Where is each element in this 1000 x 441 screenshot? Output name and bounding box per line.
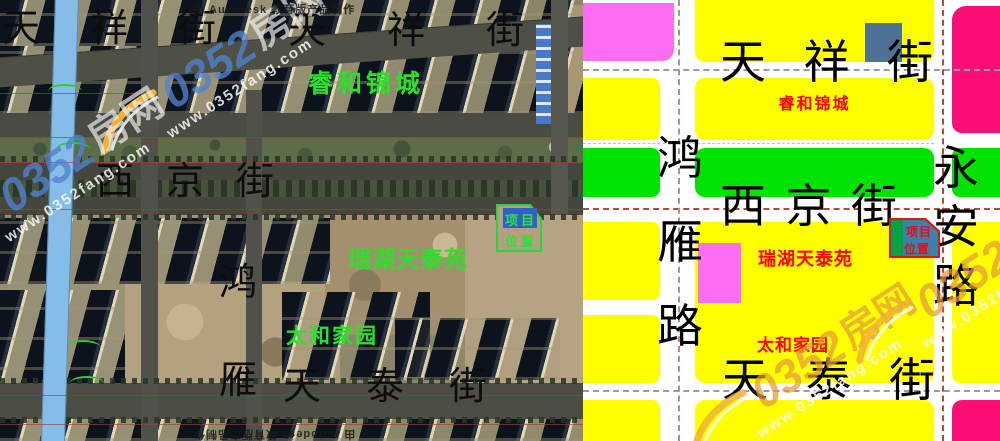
estate-label-ruihu-tiantaiyuan: 瑞湖天泰苑 xyxy=(348,248,468,271)
estate-label-ruihu-tiantaiyuan: 瑞湖天泰苑 xyxy=(758,245,853,271)
land-parcel-yellow xyxy=(695,400,934,441)
autodesk-credit-text-flipped: 由 Autodesk 教育版产品制作 xyxy=(193,427,355,441)
canal-bank-mark xyxy=(48,84,82,98)
road-surface xyxy=(551,0,568,215)
land-parcel-yellow xyxy=(583,315,660,383)
street-label-tianxiang: 天祥街 xyxy=(720,40,933,86)
road-surface xyxy=(0,163,583,180)
land-parcel-yellow xyxy=(583,78,660,140)
marker-text-line1: 项目 xyxy=(505,210,537,229)
cad-overlay-line xyxy=(0,424,583,425)
cad-overlay-line xyxy=(0,93,140,94)
street-label-tianxiang: 天祥街 xyxy=(2,10,216,48)
land-parcel-yellow xyxy=(583,400,660,441)
street-label-tiantai: 天泰街 xyxy=(283,368,487,406)
estate-label-ruihe-jincheng: 睿和锦城 xyxy=(695,90,934,114)
estate-label-taihe-jiayuan: 太和家园 xyxy=(757,331,829,356)
street-label-tianxiang: 天祥街 xyxy=(288,12,524,50)
land-parcel-yellow xyxy=(583,222,660,300)
marker-text-line2: 位置 xyxy=(505,231,537,250)
autodesk-credit-text: 由 Autodesk 教育版产品制作 xyxy=(193,1,355,17)
marker-text-line2: 位置 xyxy=(904,240,930,257)
blue-roof-buildings xyxy=(536,24,551,124)
cad-overlay-line xyxy=(0,162,583,163)
schematic-map: 天祥街 西京街 天泰街 鸿雁路 永安路 睿和锦城 瑞湖天泰苑 太和家园 项目 位… xyxy=(583,0,1000,441)
canal-bank-mark xyxy=(56,142,90,156)
project-location-marker: 项目 位置 xyxy=(889,218,940,258)
road-surface xyxy=(0,113,583,137)
road-centerline xyxy=(583,143,934,144)
street-label-xijing: 西京街 xyxy=(720,184,897,230)
tree-line xyxy=(0,417,583,423)
map-comparison-screenshot: 天祥街 天祥街 西京街 天泰街 鸿雁 睿和锦城 瑞湖天泰苑 太和家园 项目 位置… xyxy=(0,0,1000,441)
canal-bank-mark xyxy=(66,340,100,354)
project-location-marker: 项目 位置 xyxy=(496,204,542,252)
satellite-map: 天祥街 天祥街 西京街 天泰街 鸿雁 睿和锦城 瑞湖天泰苑 太和家园 项目 位置… xyxy=(0,0,583,441)
land-parcel-pink xyxy=(583,3,674,61)
street-label-tiantai: 天泰街 xyxy=(722,358,935,404)
estate-label-taihe-jiayuan: 太和家园 xyxy=(286,326,378,347)
land-parcel-pink-small xyxy=(698,243,741,303)
cad-overlay-line xyxy=(0,137,583,138)
road-median-trees xyxy=(0,180,583,197)
road-label-hongyan: 鸿雁路 xyxy=(657,136,703,350)
street-label-xijing: 西京街 xyxy=(96,163,274,201)
land-parcel-rose xyxy=(952,400,1000,441)
estate-label-ruihe-jincheng: 睿和锦城 xyxy=(308,72,424,97)
road-surface xyxy=(141,0,158,441)
canal-bank-mark xyxy=(70,376,104,390)
marker-text-line1: 项目 xyxy=(906,223,932,240)
land-parcel-green xyxy=(583,148,660,197)
road-label-hongyan: 鸿雁 xyxy=(218,264,258,400)
